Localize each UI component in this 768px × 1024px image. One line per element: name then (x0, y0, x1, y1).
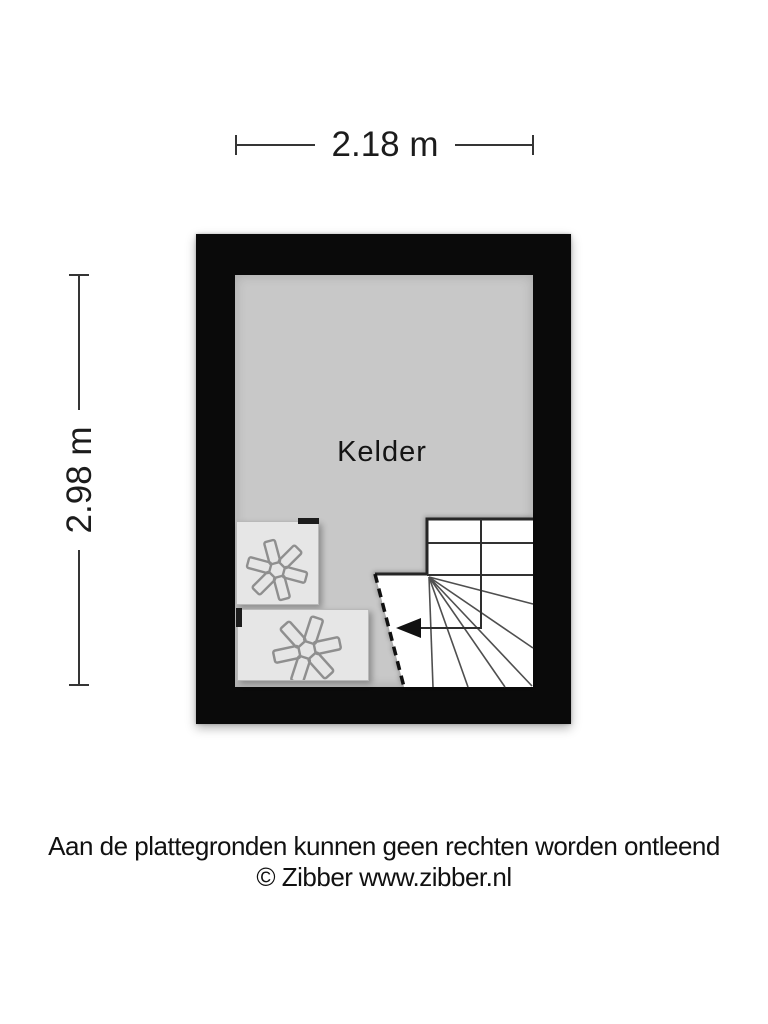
dimension-label-width: 2.18 m (315, 123, 455, 167)
dimension-tick-top (69, 274, 89, 276)
footer: Aan de plattegronden kunnen geen rechten… (0, 831, 768, 893)
dimension-tick-right (532, 135, 534, 155)
dimension-tick-bottom (69, 684, 89, 686)
wall-opening-marker-left (236, 608, 242, 627)
appliance-box-upper (236, 521, 319, 605)
appliance-asterisk-icon (237, 522, 318, 604)
footer-copyright: © Zibber www.zibber.nl (0, 862, 768, 893)
page: { "dimensions": { "top": { "label": "2.1… (0, 0, 768, 1024)
dimension-label-height: 2.98 m (58, 410, 102, 550)
appliance-box-lower (237, 609, 369, 681)
room-label: Kelder (307, 432, 457, 472)
footer-disclaimer: Aan de plattegronden kunnen geen rechten… (0, 831, 768, 862)
staircase (370, 512, 538, 688)
dimension-tick-left (235, 135, 237, 155)
wall-opening-marker-top (298, 518, 319, 524)
appliance-asterisk-icon (238, 610, 368, 680)
